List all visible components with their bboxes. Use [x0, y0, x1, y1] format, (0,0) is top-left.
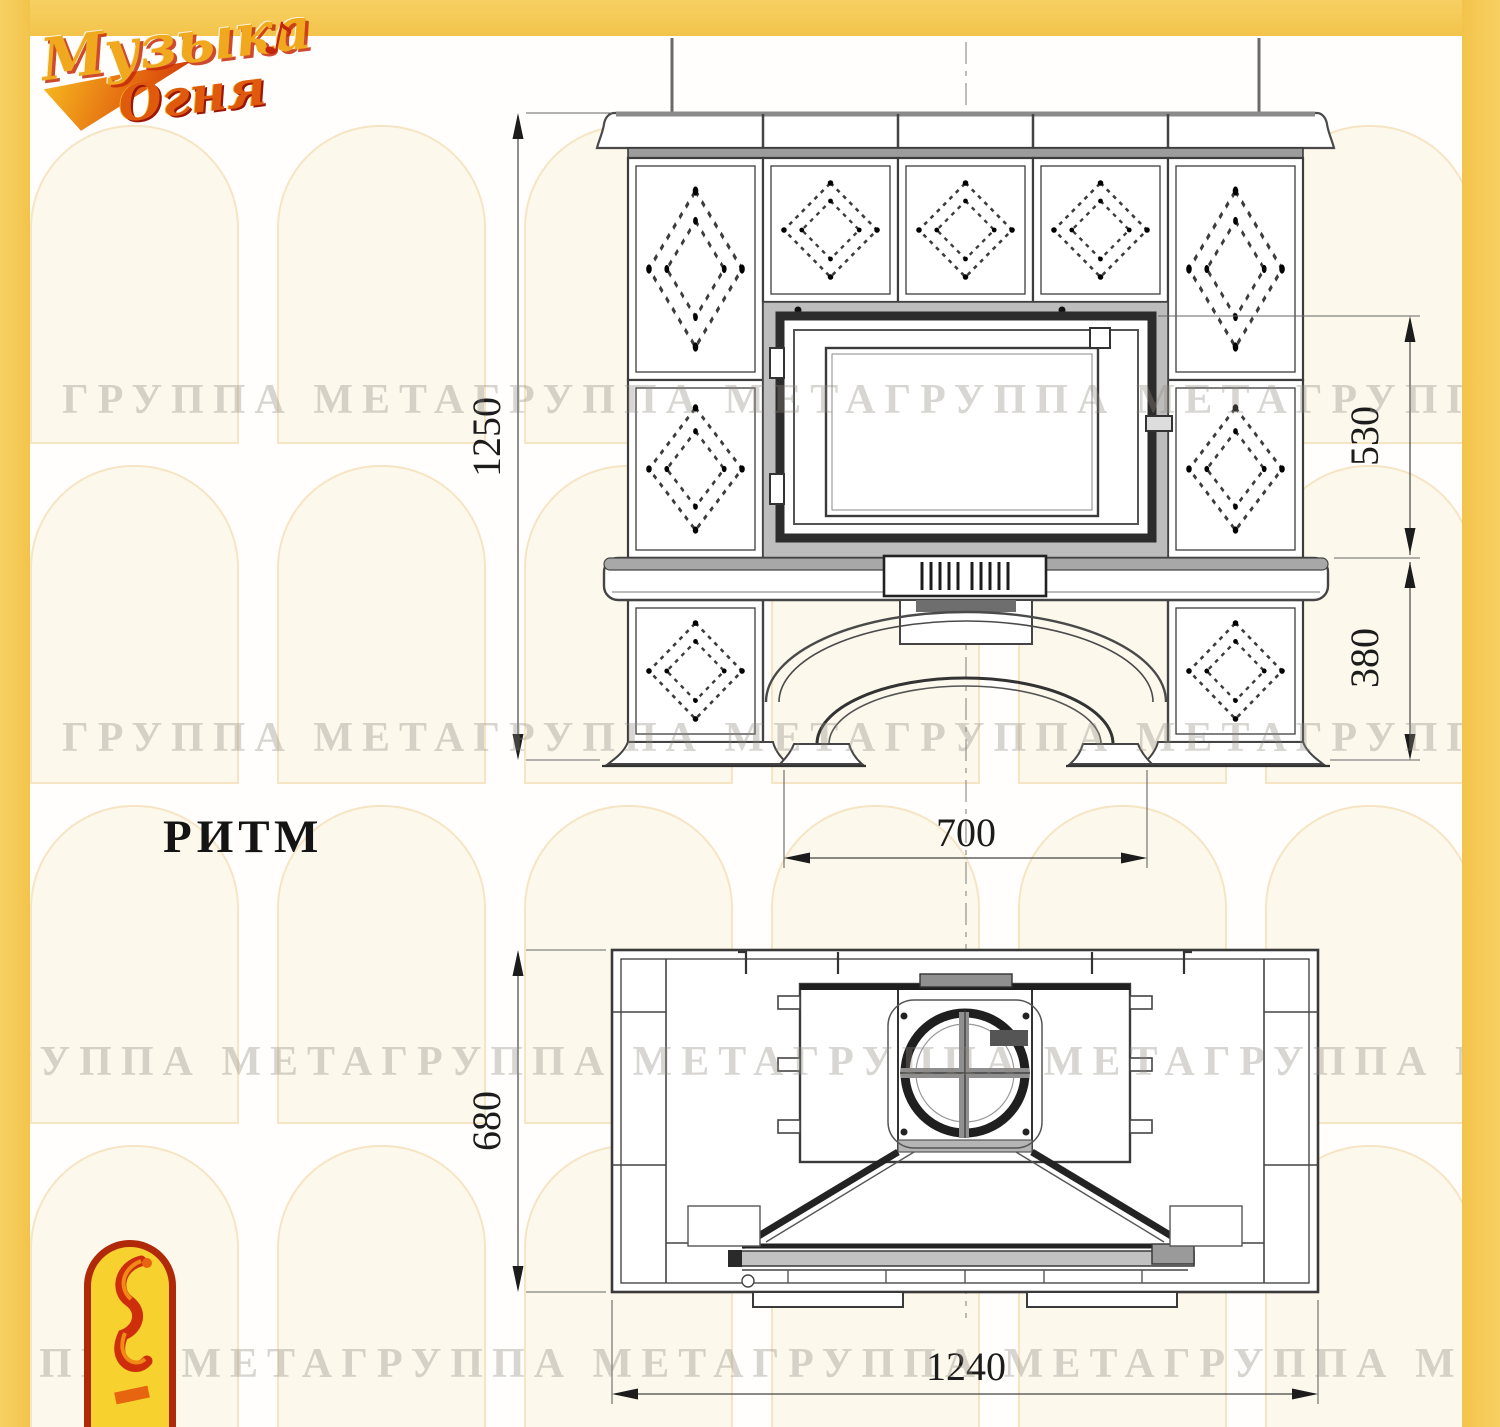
flue-collar-mount [920, 974, 1012, 987]
dim-label-380: 380 [1342, 628, 1387, 688]
foot-tab [753, 1292, 903, 1307]
watermark-text-row: ГРУППА МЕТАГРУППА МЕТАГРУППА МЕТАГРУППА … [0, 1340, 1500, 1388]
watermark-text-row: ГРУППА МЕТАГРУППА МЕТАГРУППА МЕТАГРУППА … [62, 376, 1500, 424]
watermark-text-row: ГРУППА МЕТАГРУППА МЕТАГРУППА МЕТАГРУППА … [62, 714, 1500, 762]
cleanout-box [900, 600, 1032, 644]
dimension-overall-height: 1250 [464, 113, 612, 760]
watermark-text-row: ГРУППА МЕТАГРУППА МЕТАГРУППА МЕТАГРУППА … [0, 1038, 1500, 1086]
flame-emblem [84, 1240, 176, 1427]
dim-label-700: 700 [936, 810, 996, 855]
plan-view [612, 950, 1318, 1307]
door-hinge [770, 474, 784, 504]
door-hinge [770, 348, 784, 378]
logo: Музыка Огня ♪ [26, 4, 306, 154]
dim-label-680: 680 [464, 1091, 509, 1151]
frame-left-bar [0, 0, 30, 1427]
firebox-door [763, 302, 1172, 558]
stove-tile [898, 158, 1033, 302]
page: 1250 530 380 [0, 0, 1500, 1427]
stove-tile [1033, 158, 1168, 302]
vent-grille [884, 556, 1046, 596]
stove-tile [628, 158, 763, 380]
dimension-depth: 680 [464, 950, 606, 1292]
frame-right-bar [1462, 0, 1500, 1427]
foot-tab [1027, 1292, 1177, 1307]
flame-figure [91, 1247, 169, 1427]
model-label: РИТМ [163, 810, 323, 864]
stove-tile [763, 158, 898, 302]
cornice [597, 113, 1334, 158]
stove-tile [1168, 158, 1303, 380]
door-latch [1090, 328, 1110, 348]
